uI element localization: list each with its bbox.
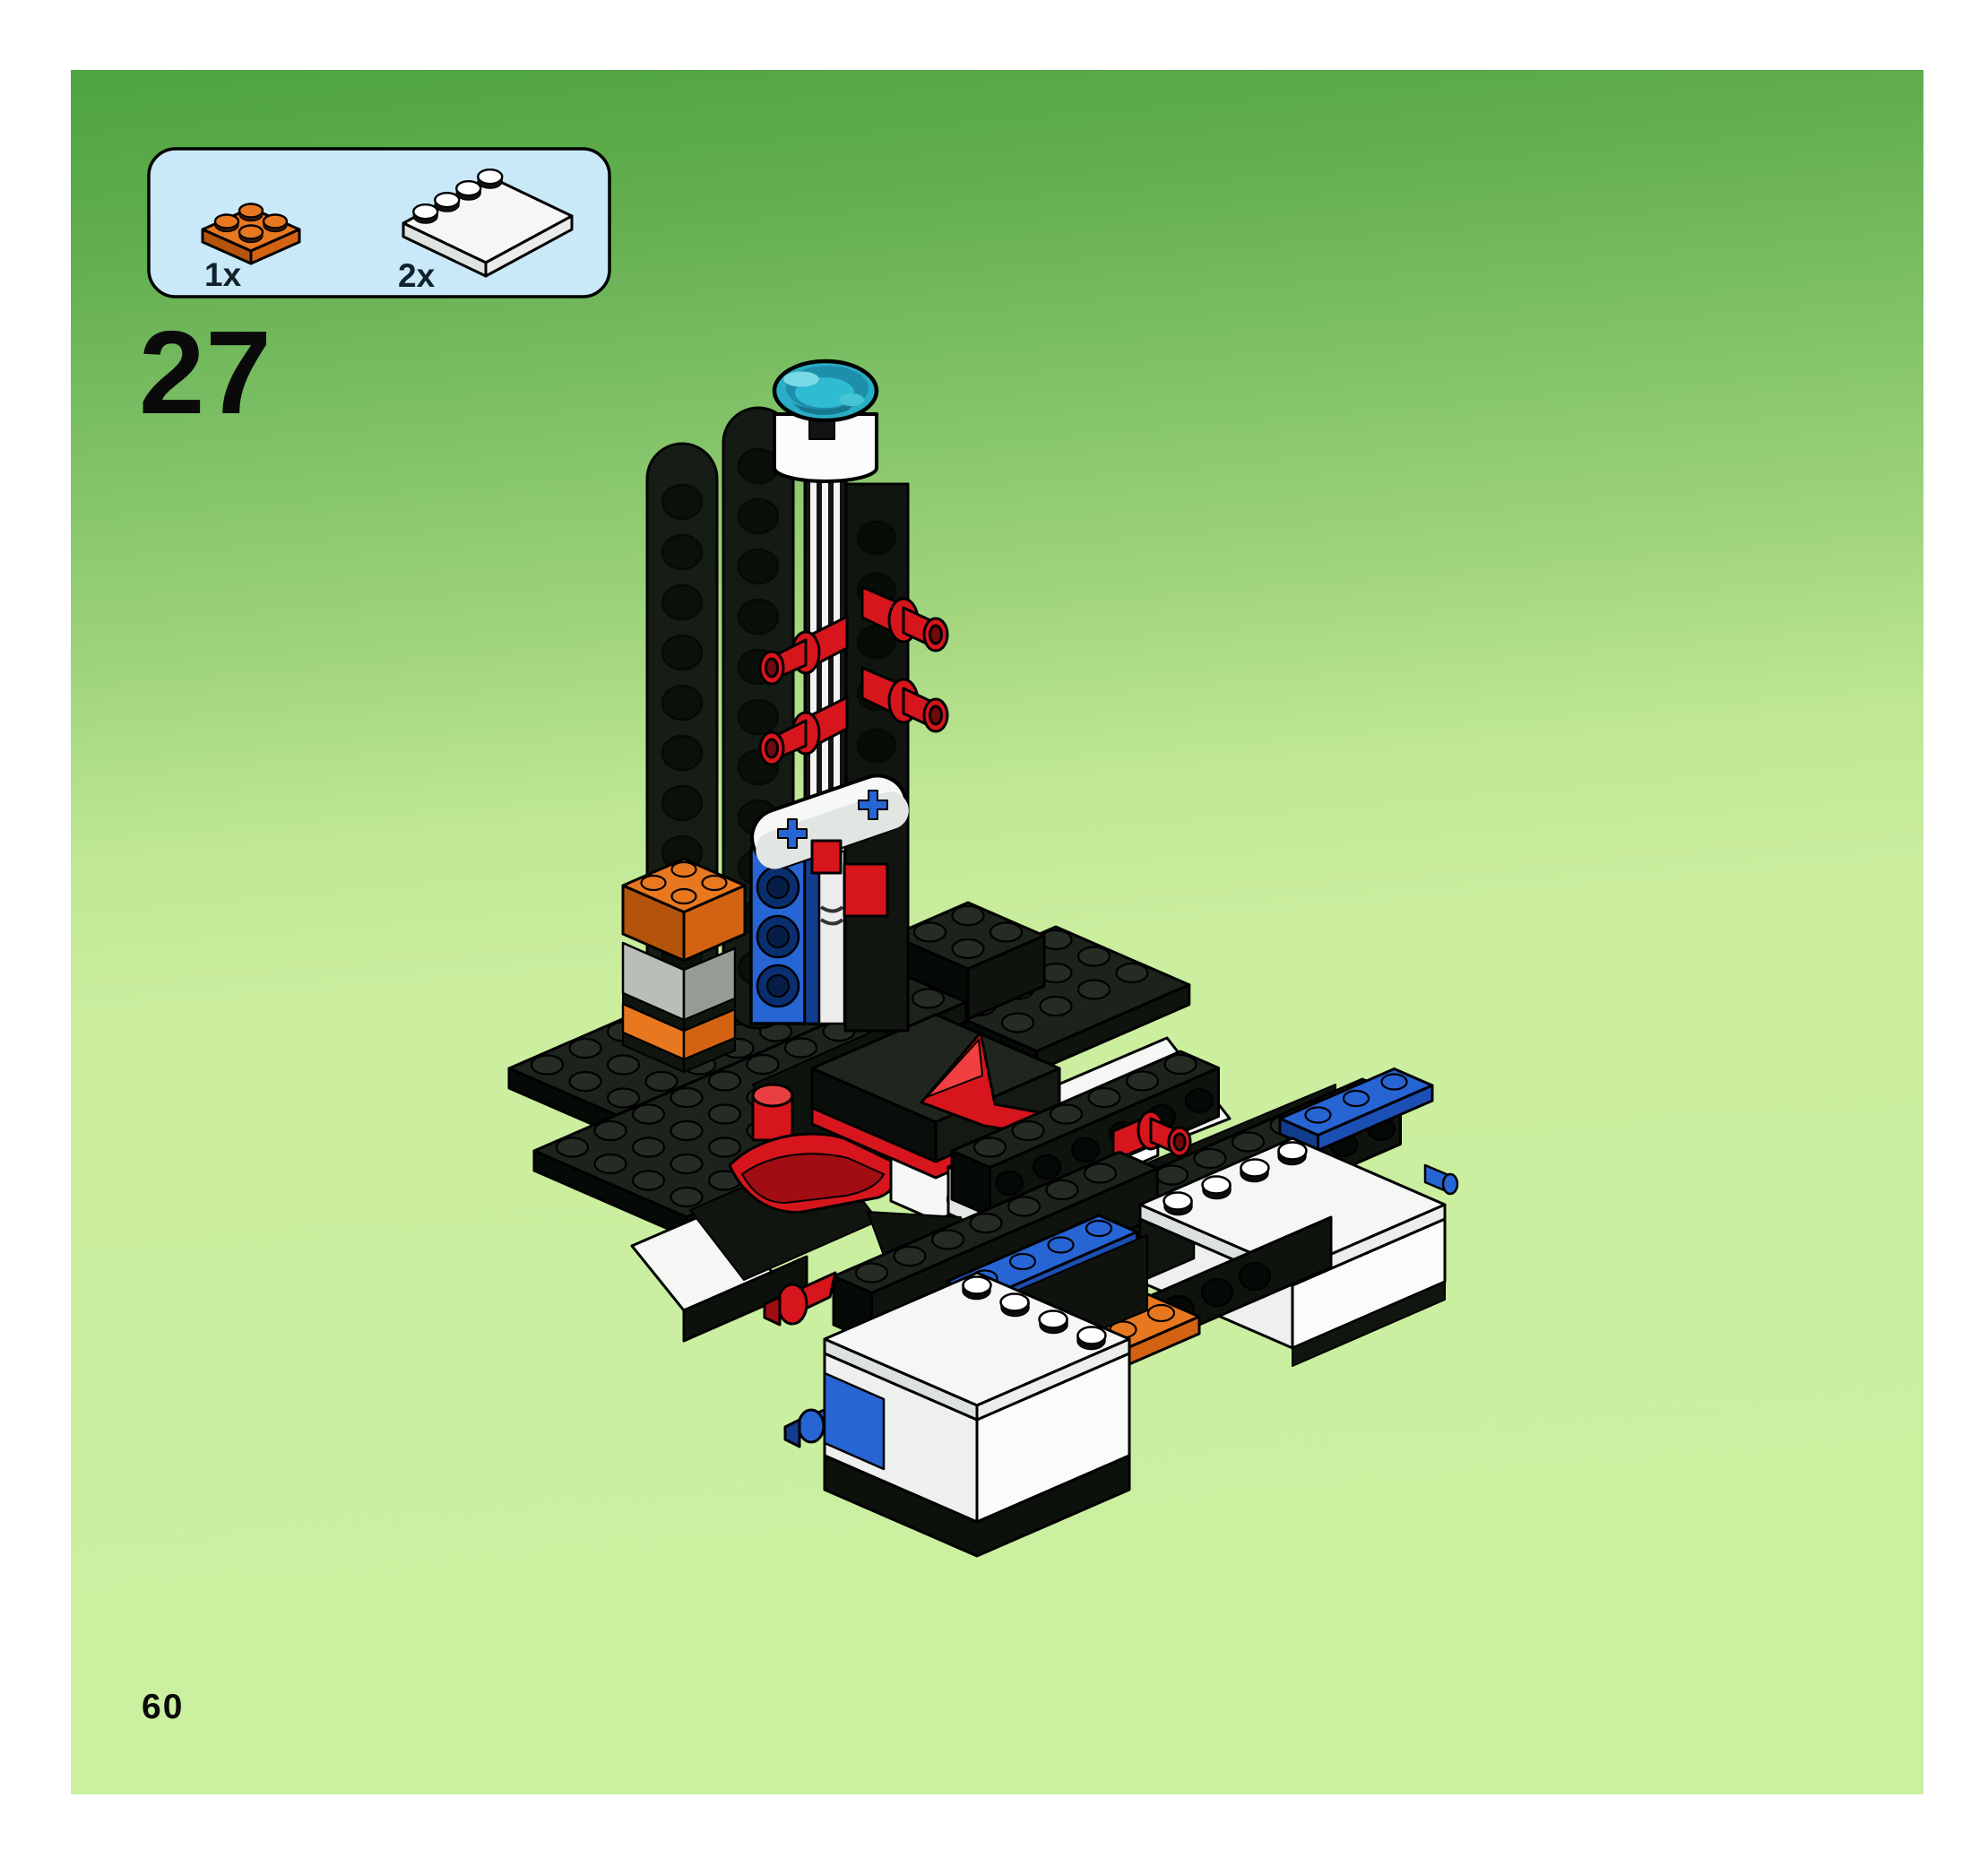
svg-text:1x: 1x xyxy=(204,256,242,293)
svg-text:60: 60 xyxy=(142,1688,184,1726)
svg-text:2x: 2x xyxy=(398,257,436,294)
svg-text:27: 27 xyxy=(139,307,272,438)
